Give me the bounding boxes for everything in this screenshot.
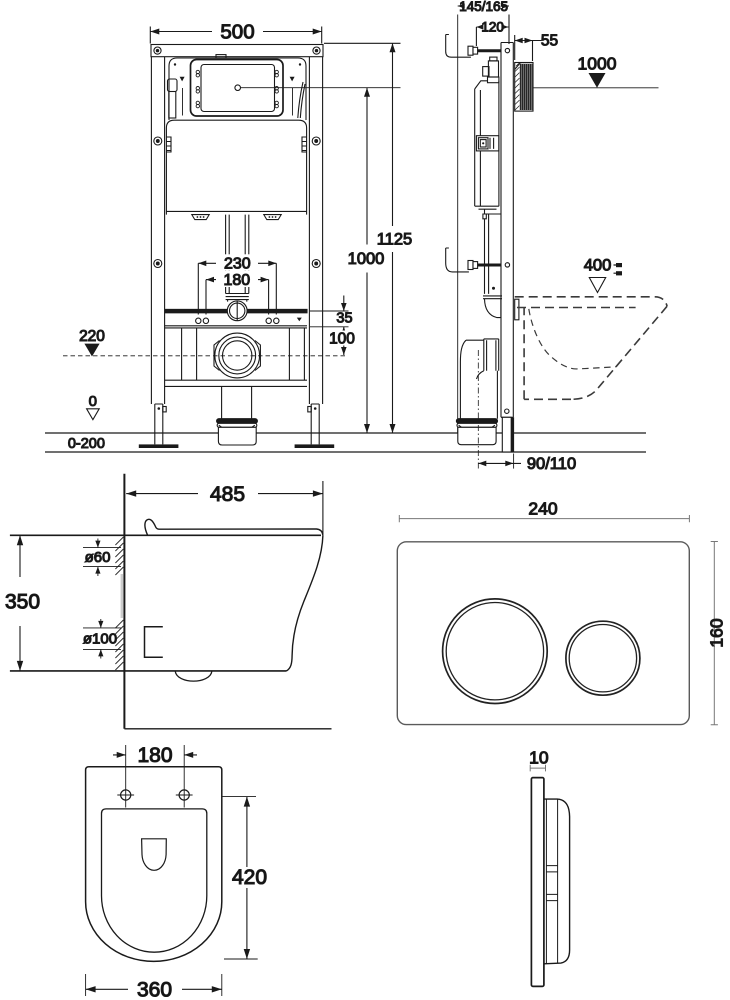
- svg-text:1000: 1000: [348, 250, 385, 268]
- svg-text:ø60: ø60: [85, 549, 111, 566]
- svg-text:180: 180: [137, 744, 172, 767]
- svg-text:100: 100: [329, 331, 355, 348]
- svg-text:35: 35: [336, 311, 352, 327]
- svg-text:350: 350: [5, 591, 40, 614]
- svg-text:120: 120: [481, 20, 504, 35]
- svg-text:180: 180: [223, 272, 250, 289]
- svg-text:360: 360: [137, 979, 172, 1000]
- svg-text:55: 55: [541, 33, 558, 50]
- svg-text:1000: 1000: [578, 54, 617, 74]
- svg-text:ø100: ø100: [83, 631, 117, 648]
- svg-text:90/110: 90/110: [527, 455, 576, 473]
- svg-text:145/165: 145/165: [459, 0, 508, 14]
- svg-text:10: 10: [529, 748, 549, 768]
- svg-text:500: 500: [220, 21, 254, 44]
- svg-text:0: 0: [89, 393, 97, 410]
- svg-text:400: 400: [584, 257, 612, 275]
- svg-text:230: 230: [224, 255, 251, 272]
- svg-text:1125: 1125: [377, 231, 412, 249]
- svg-text:485: 485: [210, 483, 245, 506]
- svg-text:420: 420: [232, 866, 267, 889]
- svg-text:0-200: 0-200: [68, 436, 105, 452]
- svg-text:160: 160: [707, 618, 727, 647]
- svg-text:240: 240: [528, 499, 557, 519]
- svg-text:220: 220: [79, 328, 105, 345]
